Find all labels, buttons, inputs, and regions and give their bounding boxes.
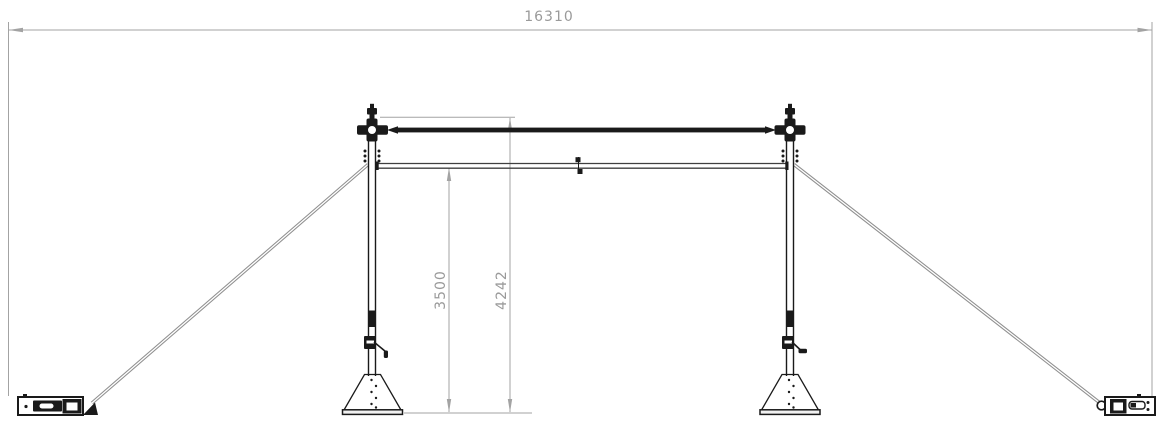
left-anchor-pin (24, 405, 27, 408)
right-top-clamp (775, 119, 806, 142)
arrow-up-icon (447, 168, 451, 182)
top-beam-tube (397, 128, 767, 133)
banner-rail (376, 157, 789, 174)
right-mast-sleeve (787, 311, 794, 328)
right-base-bolts (788, 379, 795, 409)
left-base (343, 375, 403, 415)
left-anchor-winch-window (67, 403, 78, 411)
right-crank-handle (799, 349, 808, 354)
overall-height-label: 4242 (494, 270, 510, 310)
right-winch (782, 336, 807, 353)
right-anchor-slot-block (1131, 403, 1137, 408)
overall-width-label: 16310 (524, 9, 574, 25)
left-base-bolts (370, 379, 377, 409)
right-anchor-winch-window (1114, 403, 1124, 411)
guy-wire-left (92, 165, 368, 404)
right-anchor-block (1097, 394, 1155, 415)
right-base-plate (760, 410, 820, 415)
left-base-plate (343, 410, 403, 415)
dimension-overall-width: 16310 (9, 9, 1153, 396)
dimension-overall-height: 4242 (380, 117, 532, 413)
right-base (760, 375, 820, 415)
left-top-clamp (357, 119, 388, 142)
technical-drawing: 16310 3500 4242 (0, 0, 1165, 433)
left-anchor-lug (23, 394, 27, 397)
arrow-down-icon (508, 399, 512, 413)
left-pulley-topper-icon (367, 104, 377, 121)
left-anchor-slot (40, 404, 54, 409)
left-wire-bracket (83, 403, 98, 416)
left-crank-handle (384, 351, 388, 359)
dimension-rail-height: 3500 (433, 168, 451, 413)
top-beam-left-connector (387, 126, 398, 134)
right-wire-collar (782, 150, 799, 163)
rail-height-label: 3500 (433, 270, 449, 310)
right-anchor-pin (1147, 408, 1150, 411)
left-mast-sleeve (369, 311, 376, 328)
drawing-canvas: 16310 3500 4242 (0, 0, 1165, 433)
rail-center-coupler (576, 157, 583, 174)
right-mast (760, 104, 820, 415)
left-anchor-block (18, 394, 98, 415)
top-beam-right-connector (765, 126, 776, 134)
right-pulley-topper-icon (785, 104, 795, 121)
right-anchor-lug (1137, 394, 1141, 397)
left-mast (343, 104, 403, 415)
top-beam (387, 126, 776, 134)
arrow-right-icon (1138, 28, 1153, 32)
right-anchor-pin (1147, 401, 1150, 404)
left-wire-collar (364, 150, 381, 163)
arrow-down-icon (447, 399, 451, 413)
guy-wire-right (794, 165, 1100, 404)
arrow-left-icon (9, 28, 24, 32)
